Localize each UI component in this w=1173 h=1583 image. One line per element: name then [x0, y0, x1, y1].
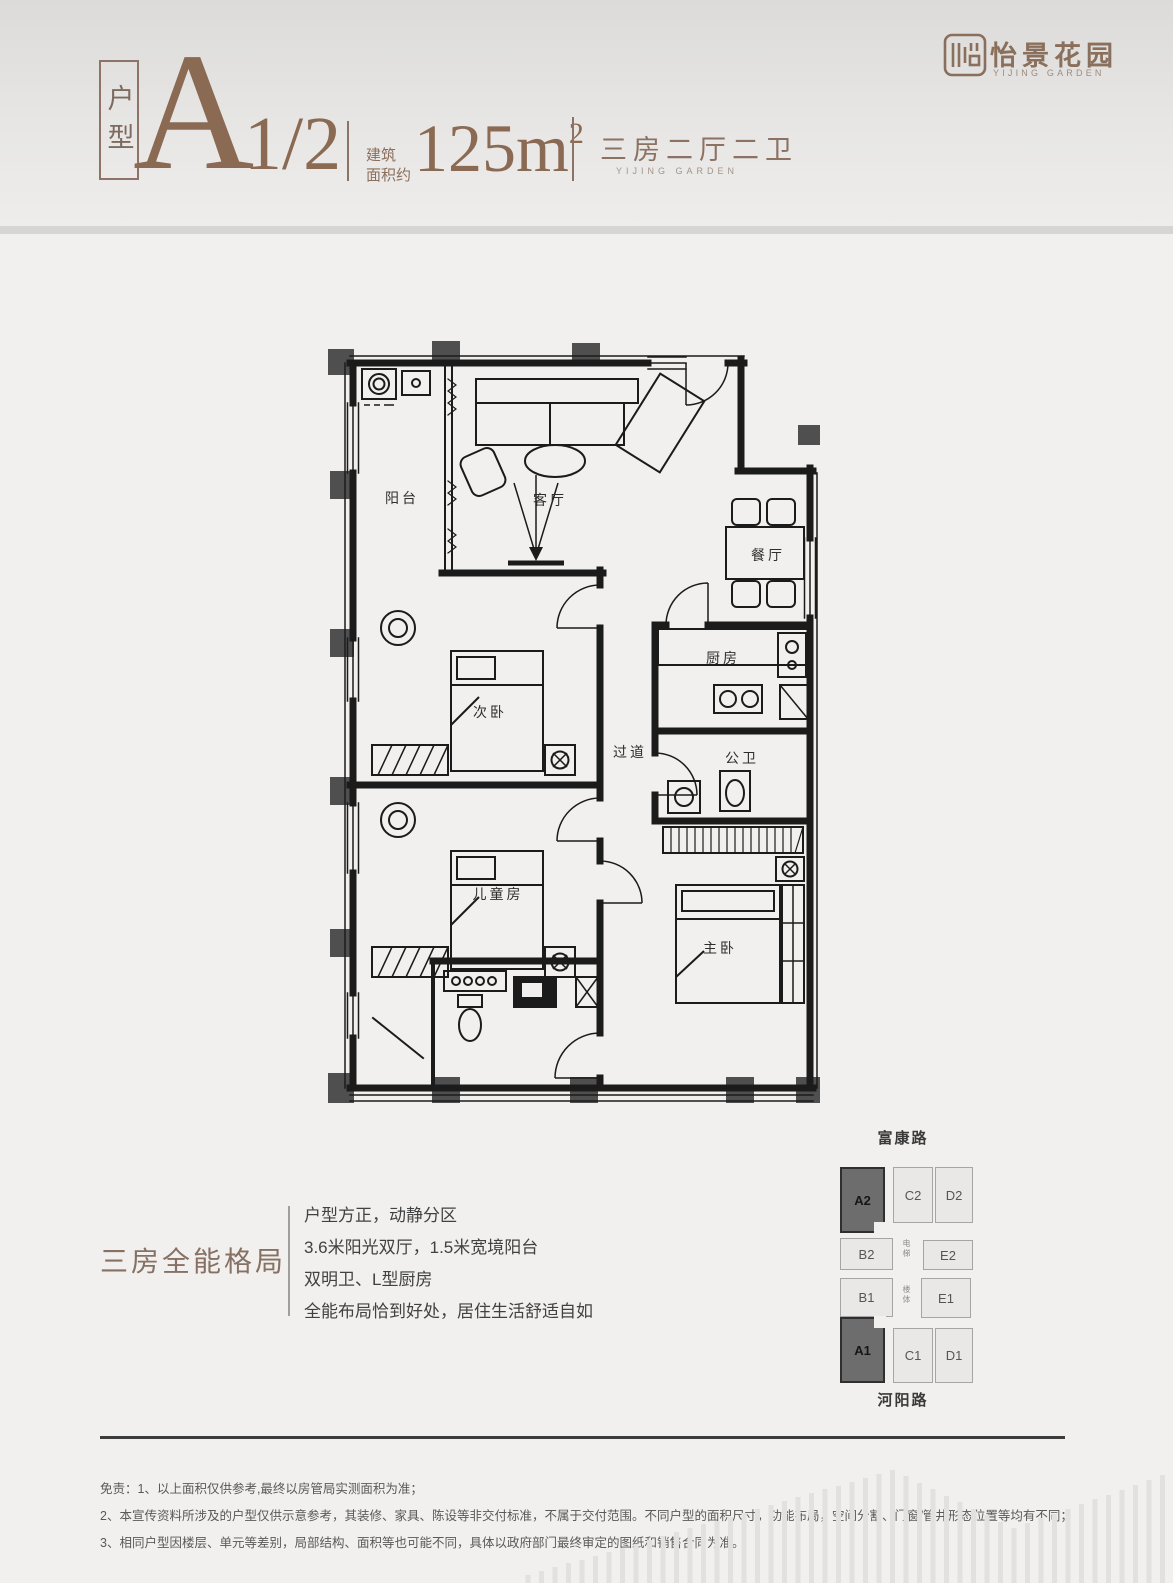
road-label-bottom: 河阳路 — [828, 1389, 978, 1410]
site-unit-E2: E2 — [923, 1240, 973, 1270]
unit-code: A — [133, 28, 254, 196]
room-label-kitchen: 厨房 — [706, 650, 740, 666]
room-label-balcony: 阳台 — [385, 490, 419, 506]
site-unit-A1-notch — [874, 1316, 886, 1328]
room-label-living: 客厅 — [533, 492, 567, 508]
features-divider — [288, 1206, 290, 1316]
pilaster-columns — [328, 341, 820, 1103]
feature-line: 双明卫、L型厨房 — [304, 1264, 593, 1296]
feature-line: 3.6米阳光双厅，1.5米宽境阳台 — [304, 1232, 593, 1264]
core-label-stairs: 楼体 — [901, 1285, 912, 1305]
room-label-bedroom2: 次卧 — [473, 704, 507, 720]
header-divider-2 — [572, 117, 574, 181]
area-prefix: 建筑 面积约 — [366, 146, 411, 186]
site-unit-E1: E1 — [921, 1278, 971, 1318]
road-label-top: 富康路 — [828, 1127, 978, 1148]
room-label-master: 主卧 — [703, 940, 737, 956]
entry-marker — [508, 475, 564, 563]
room-label-kids: 儿童房 — [473, 886, 524, 902]
room-label-hall: 过道 — [613, 744, 647, 760]
site-unit-C1: C1 — [893, 1328, 933, 1383]
feature-line: 户型方正，动静分区 — [304, 1200, 593, 1232]
room-label-dining: 餐厅 — [751, 547, 785, 563]
footer-divider — [100, 1436, 1065, 1439]
site-unit-B1: B1 — [840, 1278, 893, 1317]
site-map: 富康路 A2 C2 D2 B2 E2 B1 E1 A1 C1 D1 电梯 楼体 … — [828, 1125, 978, 1417]
features-lines: 户型方正，动静分区 3.6米阳光双厅，1.5米宽境阳台 双明卫、L型厨房 全能布… — [304, 1200, 593, 1328]
header-divider-1 — [347, 121, 349, 181]
site-unit-D1: D1 — [935, 1328, 973, 1383]
room-label-bath: 公卫 — [725, 750, 759, 766]
rooms-summary-en: YIJING GARDEN — [602, 166, 752, 176]
floorplan-poster: 户型 A 1/2 建筑 面积约 125m2 三房二厅二卫 YIJING GARD… — [0, 0, 1173, 1583]
area-prefix-line2: 面积约 — [366, 166, 411, 186]
area-number: 125m — [414, 110, 569, 186]
site-unit-C2: C2 — [893, 1167, 933, 1223]
unit-variant: 1/2 — [244, 106, 341, 182]
area-value: 125m2 — [414, 114, 584, 182]
feature-line: 全能布局恰到好处，居住生活舒适自如 — [304, 1296, 593, 1328]
floor-plan: 阳台 客厅 餐厅 次卧 过道 厨房 公卫 儿童房 主卧 — [318, 333, 878, 1125]
rooms-summary: 三房二厅二卫 — [600, 128, 798, 167]
brand-logo-sub: YIJING GARDEN — [993, 68, 1105, 78]
site-unit-B2: B2 — [840, 1238, 893, 1270]
area-prefix-line1: 建筑 — [366, 146, 411, 166]
site-unit-D2: D2 — [935, 1167, 973, 1223]
brand-logo-icon — [942, 32, 988, 78]
site-unit-A2-notch — [874, 1222, 886, 1234]
core-label-elevator: 电梯 — [901, 1239, 912, 1259]
skyline-bars-decoration — [523, 1468, 1173, 1583]
features-headline: 三房全能格局 — [100, 1240, 286, 1280]
